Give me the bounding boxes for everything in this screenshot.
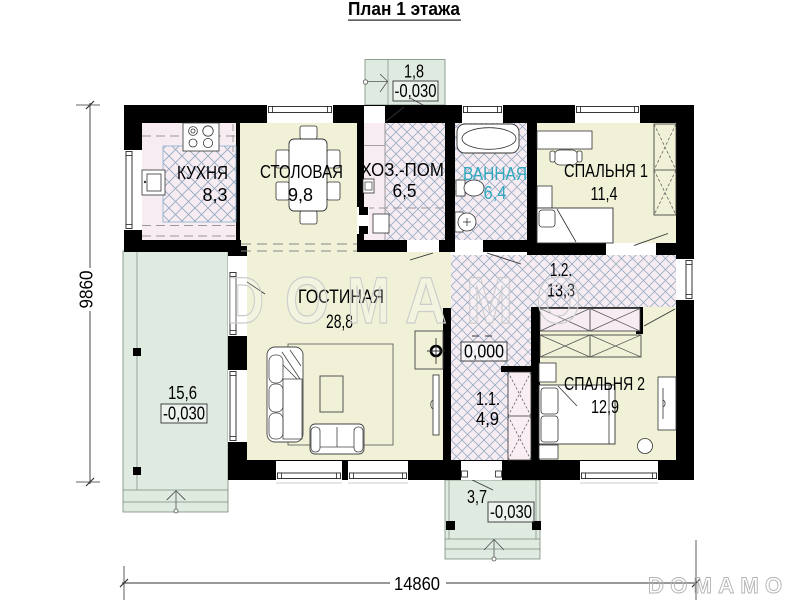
svg-text:-0,030: -0,030 <box>490 502 532 522</box>
svg-text:4,9: 4,9 <box>476 409 499 429</box>
svg-text:КУХНЯ: КУХНЯ <box>177 163 228 183</box>
svg-text:1,8: 1,8 <box>404 62 424 82</box>
svg-text:O: O <box>536 263 581 337</box>
svg-text:8,3: 8,3 <box>203 185 228 205</box>
svg-text:0,000: 0,000 <box>464 342 504 362</box>
svg-text:14860: 14860 <box>394 574 440 594</box>
svg-text:DOMAMO: DOMAMO <box>648 573 788 598</box>
svg-text:-0,030: -0,030 <box>395 81 437 101</box>
svg-text:ВАННАЯ: ВАННАЯ <box>463 164 527 184</box>
svg-text:План 1 этажа: План 1 этажа <box>348 0 461 19</box>
svg-text:11,4: 11,4 <box>591 184 618 204</box>
svg-text:СТОЛОВАЯ: СТОЛОВАЯ <box>260 162 343 182</box>
svg-text:D: D <box>227 263 264 337</box>
svg-text:O: O <box>285 263 329 337</box>
svg-text:6,5: 6,5 <box>393 181 417 201</box>
svg-text:6,4: 6,4 <box>484 183 507 203</box>
svg-text:A: A <box>405 263 447 337</box>
svg-text:15,6: 15,6 <box>168 383 197 403</box>
svg-text:-0,030: -0,030 <box>163 404 205 424</box>
svg-text:9,8: 9,8 <box>288 185 313 205</box>
svg-text:M: M <box>466 263 513 337</box>
svg-text:1.1.: 1.1. <box>476 389 500 409</box>
svg-text:M: M <box>347 263 390 337</box>
svg-text:9860: 9860 <box>77 271 97 309</box>
svg-text:12,9: 12,9 <box>591 397 619 417</box>
svg-text:СПАЛЬНЯ 1: СПАЛЬНЯ 1 <box>564 161 648 181</box>
svg-text:ХОЗ.-ПОМ.: ХОЗ.-ПОМ. <box>361 160 449 180</box>
svg-text:3,7: 3,7 <box>467 487 487 507</box>
svg-text:СПАЛЬНЯ 2: СПАЛЬНЯ 2 <box>564 374 645 394</box>
